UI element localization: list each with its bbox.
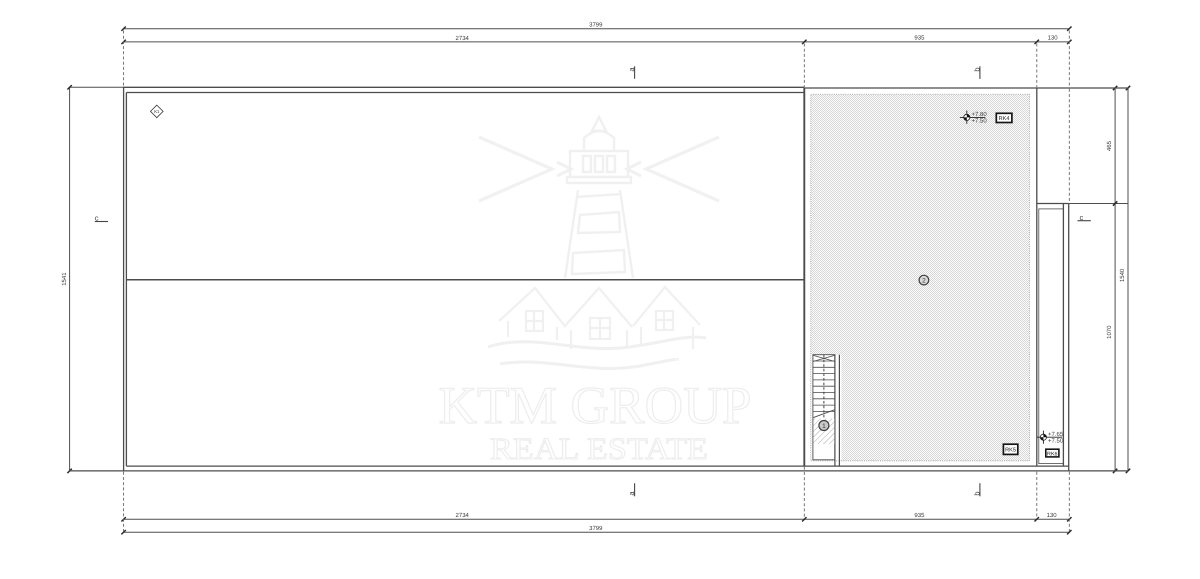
svg-text:1540: 1540 [1119,268,1126,282]
svg-text:REAL ESTATE: REAL ESTATE [490,431,708,466]
svg-text:465: 465 [1106,140,1113,151]
svg-text:KTM GROUP: KTM GROUP [439,377,752,435]
svg-text:+7.80: +7.80 [972,111,988,118]
svg-text:3799: 3799 [589,22,603,29]
svg-text:b: b [972,491,981,495]
svg-text:1: 1 [822,423,826,430]
svg-text:c: c [95,214,99,223]
svg-text:+7.50: +7.50 [1048,437,1064,444]
svg-text:1070: 1070 [1106,325,1113,339]
svg-text:130: 130 [1047,512,1058,519]
svg-text:130: 130 [1048,35,1059,42]
svg-text:c: c [1080,213,1084,222]
svg-text:935: 935 [914,512,925,519]
svg-text:2: 2 [922,278,926,285]
svg-text:b: b [972,67,981,71]
svg-text:935: 935 [914,35,925,42]
svg-text:+7.65: +7.65 [1048,431,1064,438]
svg-text:3799: 3799 [589,525,603,532]
svg-text:2734: 2734 [456,35,470,42]
svg-text:2734: 2734 [456,512,470,519]
svg-text:+7.50: +7.50 [972,118,988,125]
svg-text:1541: 1541 [61,272,68,286]
svg-text:RK5: RK5 [1005,448,1016,454]
svg-text:K1: K1 [154,109,160,114]
svg-text:RK6: RK6 [1047,451,1058,457]
svg-text:RK4: RK4 [999,116,1010,122]
